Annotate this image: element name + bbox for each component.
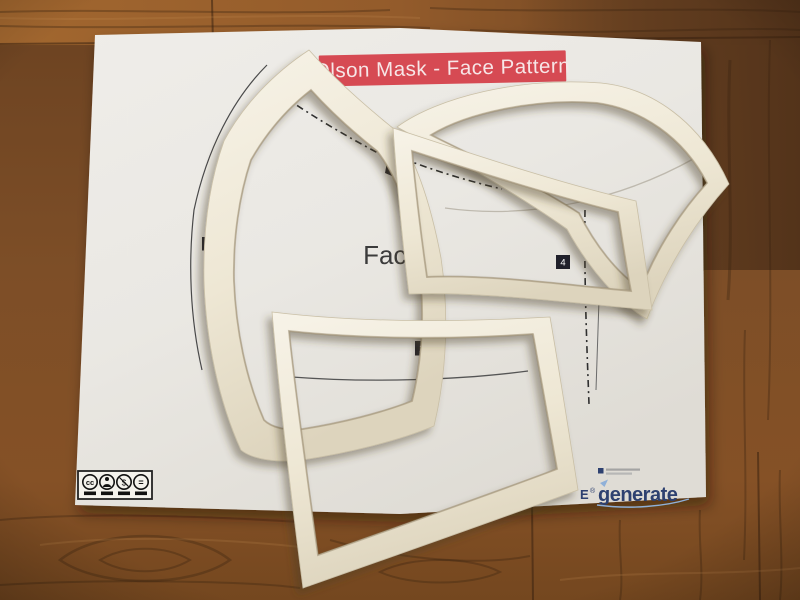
brand-fine-print-line xyxy=(606,473,632,475)
brand-fine-print-line xyxy=(606,469,640,471)
cc-license-badge: cc $ = xyxy=(78,471,152,499)
photo-svg: Olson Mask - Face Pattern Face 3 4 2 xyxy=(0,0,800,600)
brand-wordmark: generate xyxy=(598,484,678,506)
registered-mark: ® xyxy=(590,487,596,495)
svg-text:=: = xyxy=(138,478,143,488)
brand-logo-mark xyxy=(598,468,604,474)
brand-partial-text: E xyxy=(580,487,589,502)
photo-canvas: Olson Mask - Face Pattern Face 3 4 2 xyxy=(0,0,800,600)
title-banner: Olson Mask - Face Pattern xyxy=(314,50,571,86)
piece4-badge-number: 4 xyxy=(560,258,565,269)
piece4-badge: 4 xyxy=(556,255,570,269)
svg-text:cc: cc xyxy=(86,478,94,487)
